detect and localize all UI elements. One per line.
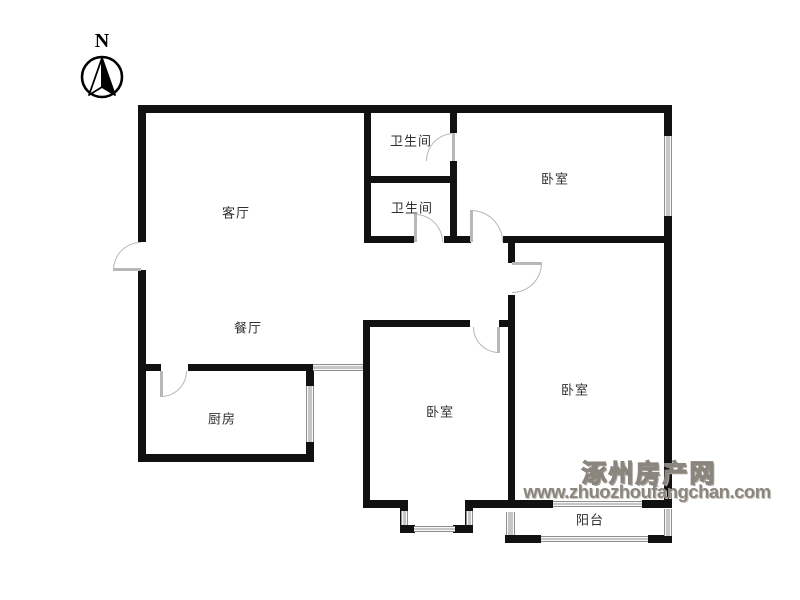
bathroom-2-door-leaf [414,214,417,242]
wall [400,525,415,533]
bedroom-middle-door-swing-arc [473,327,499,353]
bedroom-south-door-leaf [512,262,542,265]
wall [138,105,672,113]
window [664,509,672,536]
wall [450,105,457,133]
window [401,511,408,525]
room-label-living-room: 客厅 [222,203,250,222]
room-label-dining-room: 餐厅 [234,318,262,337]
window [306,386,314,442]
room-label-bedroom-middle: 卧室 [426,402,454,421]
room-label-bedroom-north: 卧室 [541,169,569,188]
compass-icon [78,52,126,100]
room-label-balcony: 阳台 [576,510,604,529]
wall [364,236,414,243]
wall [364,105,371,243]
bedroom-south-door-swing-arc [512,263,542,293]
wall [508,243,515,263]
wall [138,454,314,462]
wall [505,535,541,543]
wall [499,320,515,327]
window [313,364,363,371]
window [506,512,515,535]
kitchen-door-leaf [160,371,163,397]
window [664,136,672,216]
room-label-kitchen: 厨房 [208,409,236,428]
wall [450,161,457,243]
entry-door-swing-arc [113,242,141,270]
kitchen-door-swing-arc [161,371,187,397]
wall [648,535,672,543]
window [466,511,473,525]
floorplan-page: 客厅餐厅厨房卫生间卫生间卧室卧室卧室阳台 N 涿州房产网 www.zhuozho… [0,0,800,600]
bedroom-middle-door-leaf [497,327,500,353]
window [414,526,455,532]
wall [503,236,672,243]
wall [188,364,306,371]
bedroom-north-door-swing-arc [471,210,503,242]
room-label-bedroom-south: 卧室 [561,380,589,399]
bedroom-north-door-leaf [470,210,473,242]
wall [363,327,370,508]
compass-north-label: N [78,30,126,52]
compass: N [78,30,126,105]
wall [364,176,457,183]
wall [363,320,470,327]
bathroom-1-door-leaf [452,133,455,161]
entry-door-leaf [113,268,141,271]
window [541,536,648,542]
wall [138,364,161,371]
wall [444,236,471,243]
room-label-bathroom-1: 卫生间 [390,131,432,150]
wall [138,105,146,242]
bathroom-2-door-swing-arc [415,214,443,242]
room-label-bathroom-2: 卫生间 [391,198,433,217]
wall [505,500,553,508]
window [553,501,642,507]
